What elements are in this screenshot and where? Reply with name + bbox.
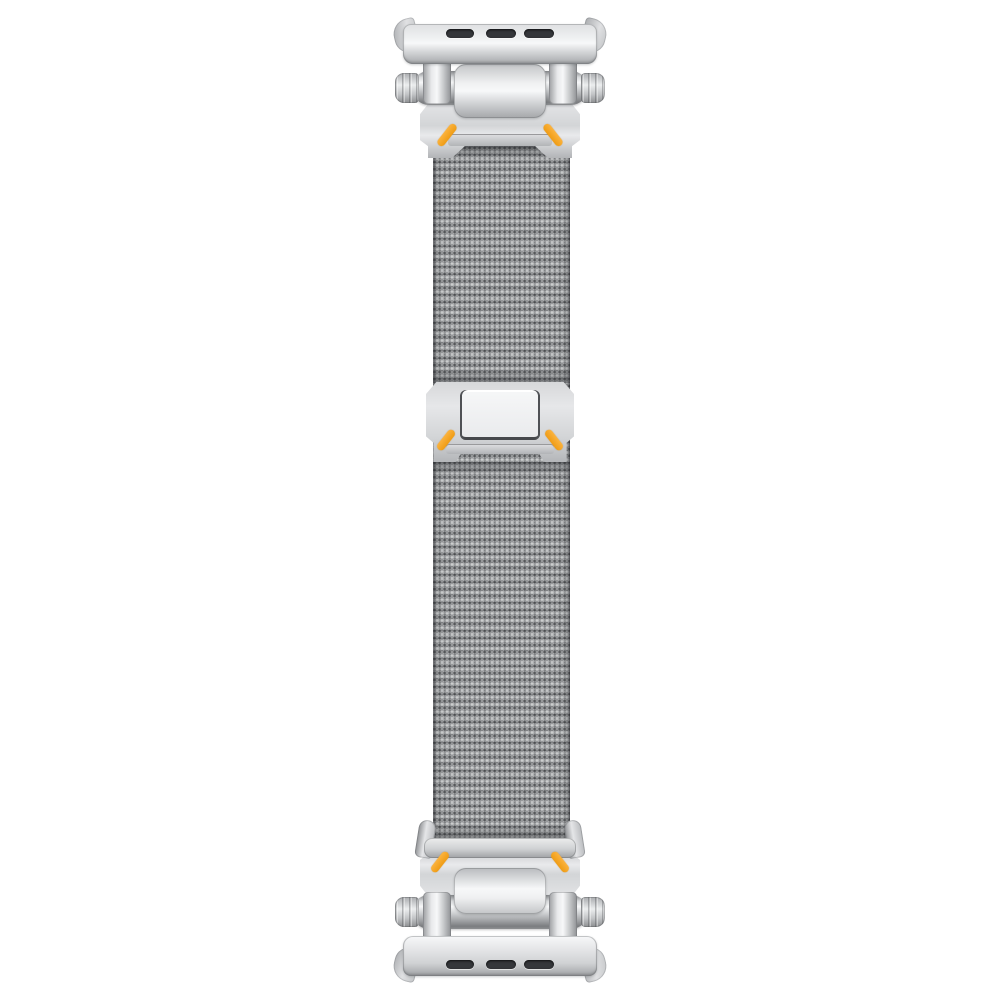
lug-slot [486,29,516,38]
lug-slot [446,29,474,38]
barrel-cap [395,73,419,103]
barrel-cap [395,897,419,927]
mesh-strap [433,146,570,840]
barrel-cap [581,73,605,103]
plate-bridge [448,134,552,146]
lug-adapter-bar [403,936,597,976]
lug-slot [486,960,516,969]
hinge-knuckle [454,868,546,914]
clasp-inner-plate [460,390,540,440]
lug-slot [524,29,554,38]
barrel-cap [581,897,605,927]
product-photo-canvas [0,0,1000,1000]
lug-slot [524,960,554,969]
clasp-bridge [446,444,554,454]
hinge-knuckle [454,64,546,118]
lug-slot [446,960,474,969]
